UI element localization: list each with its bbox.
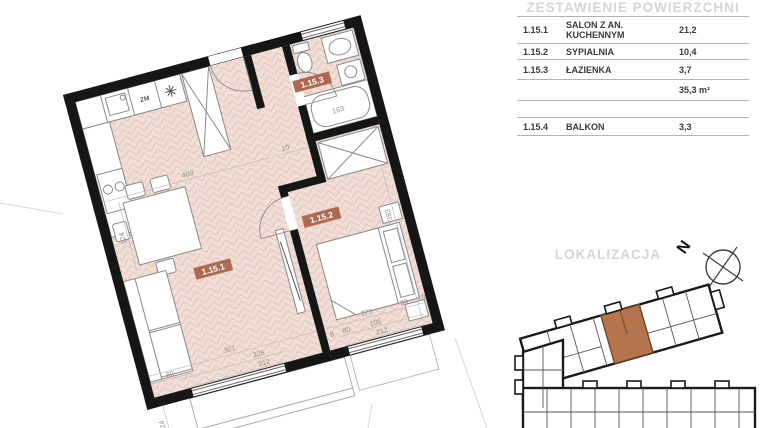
room-name: SYPIALNIA [566, 47, 679, 57]
apartment-plan: ZM [63, 15, 455, 428]
building-locator [515, 274, 755, 428]
room-name: SALON Z AN. KUCHENNYM [566, 20, 679, 40]
area-table: 1.15.1 SALON Z AN. KUCHENNYM 21,2 1.15.2… [517, 16, 749, 136]
total-area: 35,3 m² [679, 85, 749, 95]
room-name: BALKON [566, 122, 679, 132]
table-row: 1.15.1 SALON Z AN. KUCHENNYM 21,2 [517, 16, 749, 43]
room-area: 10,4 [679, 47, 749, 57]
room-name: ŁAZIENKA [566, 65, 679, 75]
svg-text:24: 24 [157, 420, 168, 428]
table-row: 1.15.2 SYPIALNIA 10,4 [517, 43, 749, 59]
table-row: 1.15.3 ŁAZIENKA 3,7 [517, 59, 749, 79]
room-code: 1.15.1 [517, 25, 566, 35]
room-code: 1.15.4 [517, 122, 566, 132]
table-row: 1.15.4 BALKON 3,3 [517, 117, 749, 135]
table-end-line [517, 135, 749, 136]
room-area: 3,7 [679, 65, 749, 75]
room-area: 3,3 [679, 122, 749, 132]
room-code: 1.15.2 [517, 47, 566, 57]
table-spacer [517, 100, 749, 117]
area-table-title: ZESTAWIENIE POWIERZCHNI [517, 0, 749, 16]
room-area: 21,2 [679, 25, 749, 35]
room-code: 1.15.3 [517, 65, 566, 75]
localization-title: LOKALIZACJA [517, 247, 699, 263]
floorplan-page: { "table": { "title": "ZESTAWIENIE POWIE… [0, 0, 760, 428]
table-total-row: 35,3 m² [517, 79, 749, 100]
